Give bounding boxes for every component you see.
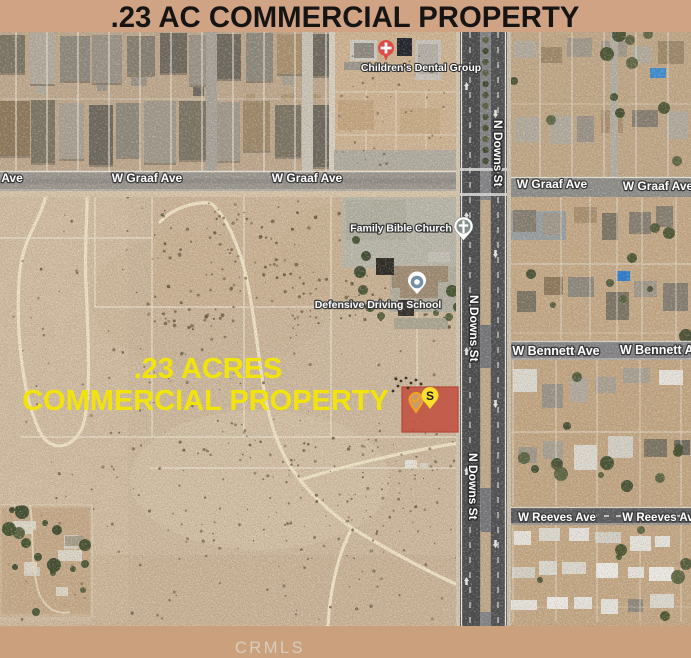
svg-text:W Graaf Ave: W Graaf Ave <box>517 177 588 191</box>
svg-text:Ave: Ave <box>1 171 23 185</box>
svg-text:W Graaf Ave: W Graaf Ave <box>272 171 343 185</box>
svg-text:W Reeves Av: W Reeves Av <box>622 512 691 524</box>
svg-text:S: S <box>426 389 434 403</box>
svg-text:Children's Dental Group: Children's Dental Group <box>361 62 481 74</box>
svg-text:W Graaf Ave: W Graaf Ave <box>623 179 691 193</box>
svg-text:.23 AC COMMERCIAL PROPERTY: .23 AC COMMERCIAL PROPERTY <box>111 1 580 34</box>
svg-text:Family Bible Church: Family Bible Church <box>350 223 452 235</box>
svg-text:N Downs St: N Downs St <box>466 453 480 520</box>
svg-text:COMMERCIAL PROPERTY: COMMERCIAL PROPERTY <box>22 385 389 417</box>
svg-text:W Bennett Ave: W Bennett Ave <box>512 344 599 358</box>
svg-text:.23 ACRES: .23 ACRES <box>134 353 283 385</box>
svg-text:N Downs St: N Downs St <box>491 120 505 187</box>
svg-text:W Reeves Ave: W Reeves Ave <box>518 512 596 524</box>
svg-text:N Downs St: N Downs St <box>467 295 481 362</box>
svg-text:Defensive Driving School: Defensive Driving School <box>315 299 442 311</box>
svg-text:W Bennett Av: W Bennett Av <box>620 343 691 357</box>
svg-text:CRMLS: CRMLS <box>235 639 305 657</box>
svg-text:W Graaf Ave: W Graaf Ave <box>112 171 183 185</box>
